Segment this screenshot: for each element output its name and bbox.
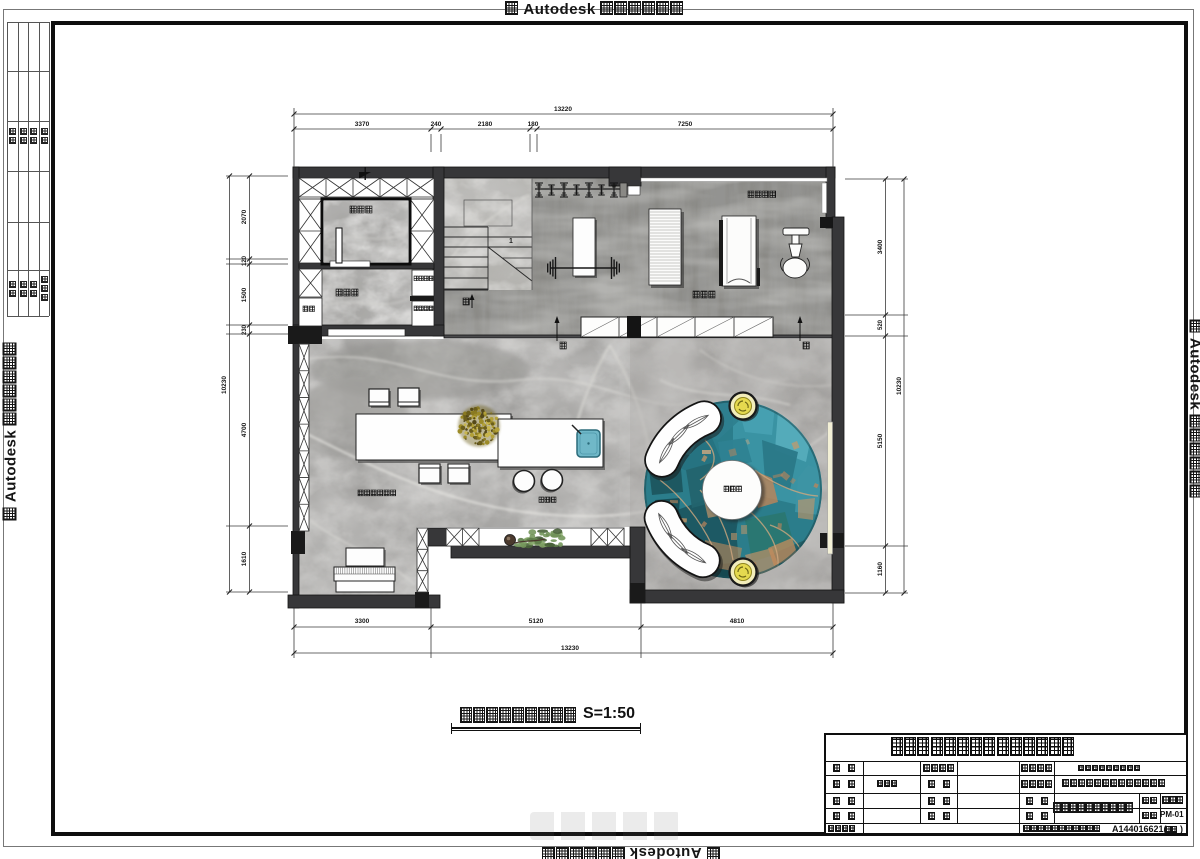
svg-text:120: 120 bbox=[242, 255, 248, 266]
svg-text:520: 520 bbox=[878, 319, 884, 330]
svg-text:3300: 3300 bbox=[355, 618, 370, 625]
svg-text:1160: 1160 bbox=[877, 562, 884, 576]
svg-text:1500: 1500 bbox=[241, 287, 248, 302]
svg-text:240: 240 bbox=[431, 121, 442, 128]
svg-text:2070: 2070 bbox=[241, 209, 248, 224]
svg-text:10230: 10230 bbox=[896, 377, 903, 395]
svg-text:5150: 5150 bbox=[877, 433, 884, 448]
svg-text:5120: 5120 bbox=[529, 618, 544, 625]
svg-text:4700: 4700 bbox=[241, 422, 248, 437]
svg-text:3400: 3400 bbox=[877, 239, 884, 254]
svg-text:1610: 1610 bbox=[241, 551, 248, 566]
svg-text:2180: 2180 bbox=[478, 121, 493, 128]
svg-text:4810: 4810 bbox=[730, 618, 745, 625]
svg-text:230: 230 bbox=[242, 324, 248, 335]
svg-text:10230: 10230 bbox=[221, 376, 228, 394]
svg-text:1: 1 bbox=[509, 238, 513, 245]
svg-text:13220: 13220 bbox=[554, 106, 572, 113]
svg-text:7250: 7250 bbox=[678, 121, 693, 128]
svg-text:13230: 13230 bbox=[561, 645, 579, 652]
svg-text:180: 180 bbox=[528, 121, 539, 128]
svg-text:3370: 3370 bbox=[355, 121, 370, 128]
